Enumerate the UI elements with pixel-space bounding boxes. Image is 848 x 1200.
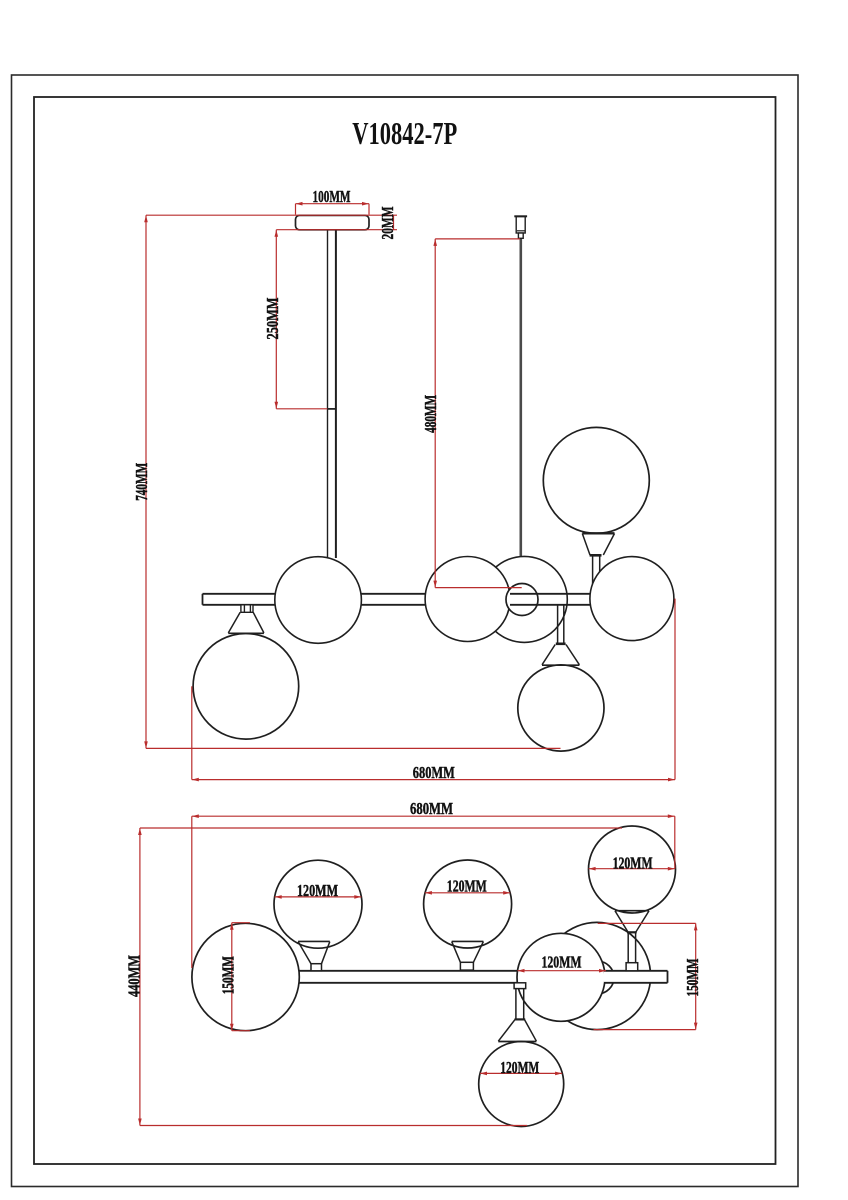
svg-text:740MM: 740MM <box>132 463 151 501</box>
svg-text:120MM: 120MM <box>542 952 582 971</box>
svg-text:480MM: 480MM <box>421 395 440 433</box>
svg-text:V10842-7P: V10842-7P <box>352 116 457 151</box>
svg-text:120MM: 120MM <box>447 876 487 895</box>
svg-text:120MM: 120MM <box>613 853 653 872</box>
svg-text:440MM: 440MM <box>124 955 143 997</box>
svg-text:20MM: 20MM <box>378 207 397 240</box>
svg-text:680MM: 680MM <box>413 763 455 782</box>
svg-text:120MM: 120MM <box>500 1058 539 1077</box>
svg-text:250MM: 250MM <box>263 298 282 340</box>
svg-text:150MM: 150MM <box>219 956 238 994</box>
svg-text:100MM: 100MM <box>313 187 351 206</box>
svg-text:120MM: 120MM <box>297 881 338 900</box>
svg-text:680MM: 680MM <box>410 799 453 818</box>
svg-text:150MM: 150MM <box>683 959 702 997</box>
